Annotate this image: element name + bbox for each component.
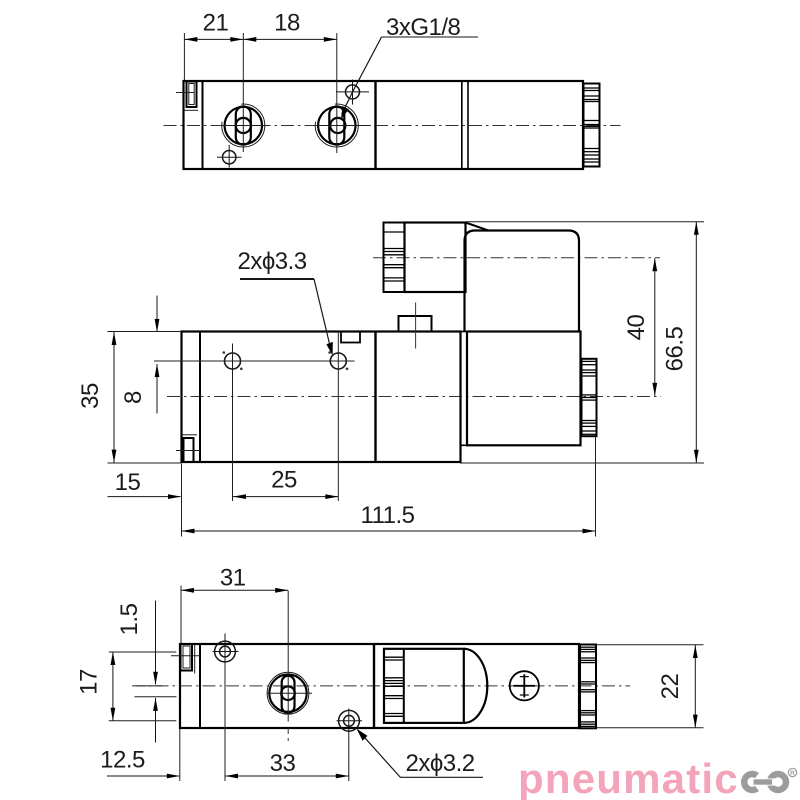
svg-text:22: 22 bbox=[657, 674, 684, 700]
svg-text:17: 17 bbox=[76, 669, 103, 695]
svg-text:pneumatic: pneumatic bbox=[518, 755, 739, 800]
svg-text:111.5: 111.5 bbox=[361, 502, 415, 529]
svg-text:15: 15 bbox=[115, 469, 141, 496]
svg-text:R: R bbox=[790, 770, 795, 777]
svg-text:18: 18 bbox=[274, 10, 300, 37]
svg-text:33: 33 bbox=[270, 750, 296, 777]
svg-text:1.5: 1.5 bbox=[116, 603, 143, 635]
svg-text:31: 31 bbox=[220, 565, 246, 592]
svg-text:8: 8 bbox=[120, 391, 147, 404]
svg-text:2xϕ3.2: 2xϕ3.2 bbox=[406, 750, 475, 777]
svg-text:66.5: 66.5 bbox=[662, 326, 689, 371]
svg-text:40: 40 bbox=[623, 315, 650, 341]
svg-text:35: 35 bbox=[77, 383, 104, 409]
svg-text:2xϕ3.3: 2xϕ3.3 bbox=[238, 248, 307, 275]
svg-text:21: 21 bbox=[203, 10, 229, 37]
svg-text:25: 25 bbox=[271, 467, 297, 494]
svg-text:12.5: 12.5 bbox=[100, 747, 145, 774]
